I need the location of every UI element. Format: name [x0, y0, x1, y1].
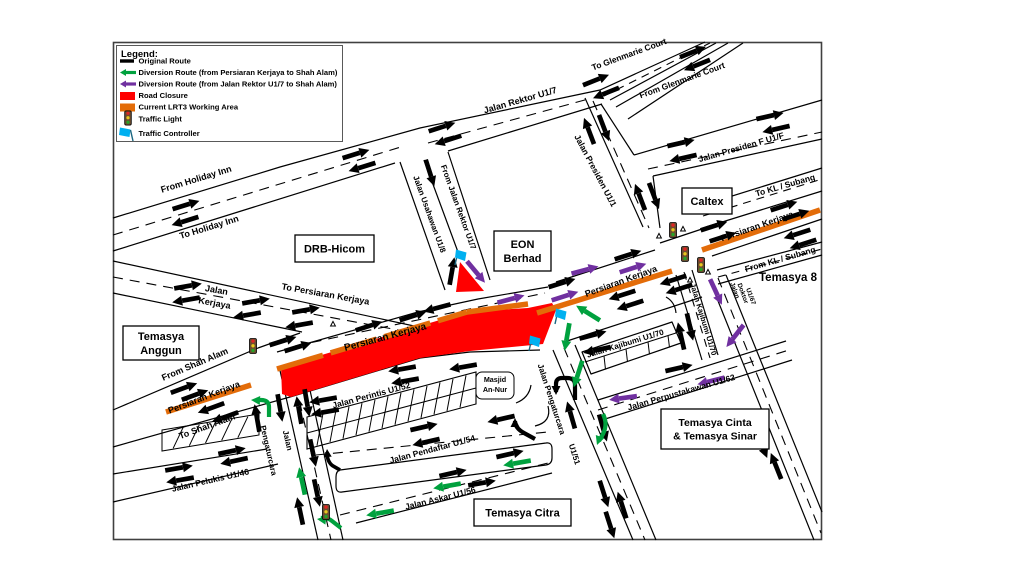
svg-text:Temasya Cinta: Temasya Cinta	[678, 417, 751, 429]
svg-text:Traffic Light: Traffic Light	[139, 115, 183, 124]
svg-text:DRB-Hicom: DRB-Hicom	[304, 243, 365, 255]
svg-text:Caltex: Caltex	[690, 196, 724, 208]
svg-text:& Temasya Sinar: & Temasya Sinar	[673, 430, 757, 442]
svg-text:Anggun: Anggun	[140, 345, 182, 357]
svg-text:Original Route: Original Route	[139, 57, 191, 66]
svg-text:Temasya: Temasya	[138, 331, 185, 343]
svg-text:EON: EON	[511, 239, 535, 251]
svg-text:Diversion Route (from Jalan Re: Diversion Route (from Jalan Rektor U1/7 …	[139, 80, 338, 89]
svg-text:Temasya Citra: Temasya Citra	[485, 507, 560, 519]
svg-text:Masjid: Masjid	[484, 375, 506, 384]
svg-text:Traffic Controller: Traffic Controller	[139, 129, 200, 138]
svg-text:Road Closure: Road Closure	[139, 91, 188, 100]
svg-text:Berhad: Berhad	[504, 253, 542, 265]
svg-text:Current LRT3 Working Area: Current LRT3 Working Area	[139, 103, 239, 112]
svg-text:Diversion Route (from Persiara: Diversion Route (from Persiaran Kerjaya …	[139, 68, 338, 77]
svg-text:Temasya 8: Temasya 8	[759, 272, 818, 284]
svg-text:An-Nur: An-Nur	[483, 385, 508, 394]
